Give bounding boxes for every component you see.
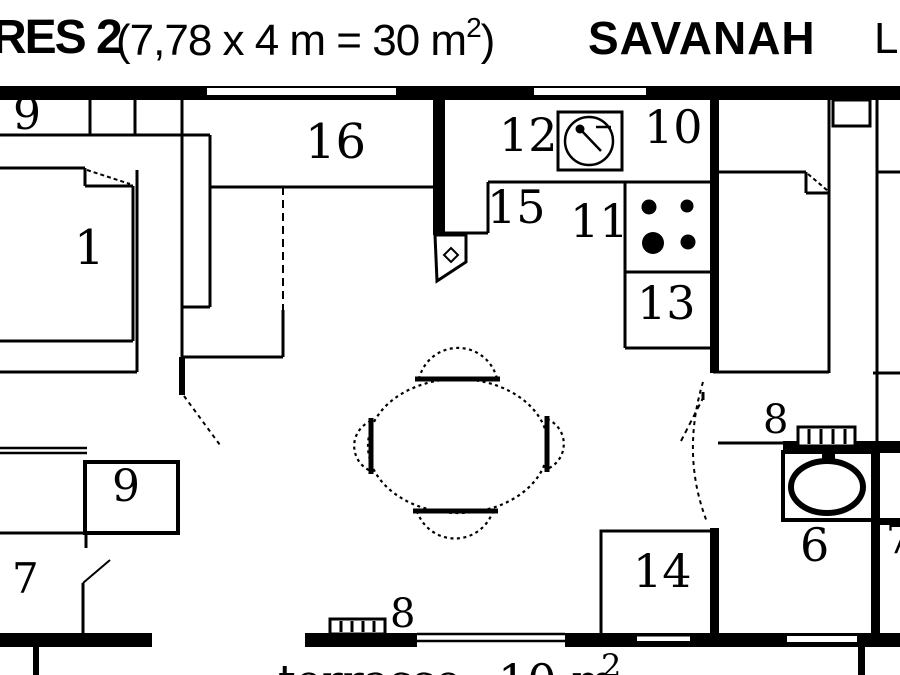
kitchen-sink-icon (565, 117, 613, 165)
room-label-8-bath: 8 (763, 400, 788, 440)
wall-bottom-left (0, 633, 152, 647)
fixture-boxes (85, 100, 875, 635)
terrace-post-right (858, 647, 865, 675)
terrace-area: 10 m (498, 658, 615, 675)
room-label-13: 13 (637, 280, 696, 326)
window-top-left (207, 88, 396, 95)
wall-center-right (710, 100, 719, 373)
terrace-label: terrasse (278, 660, 461, 675)
dining-table-icon (368, 379, 548, 513)
window-top-center (534, 88, 646, 95)
room-label-10: 10 (644, 104, 703, 150)
vent-terrace-icon (330, 619, 385, 634)
chair-right-icon (547, 419, 564, 469)
wall-top (0, 86, 900, 100)
room-label-9-top: 9 (13, 93, 41, 137)
chair-bottom-icon (417, 511, 493, 539)
fridge-box (833, 100, 870, 126)
room-label-7-right-partial: 7 (886, 520, 900, 560)
vent-bath-icon (798, 427, 855, 446)
room-label-6: 6 (800, 522, 829, 568)
room-label-8-terrace: 8 (390, 594, 415, 634)
bedroom2-door-leaf (681, 398, 703, 441)
bed-1 (0, 168, 133, 341)
room-label-12: 12 (499, 112, 558, 158)
door-post-bedroom1 (179, 357, 185, 395)
dining-set (354, 348, 564, 539)
room-label-1: 1 (74, 224, 105, 272)
room-label-15: 15 (487, 184, 546, 230)
room-label-11: 11 (570, 198, 629, 244)
bedroom1-door-swing (184, 396, 220, 445)
bed-2-fold (808, 174, 828, 191)
hob-burners-icon (642, 200, 696, 255)
wall-entry (433, 100, 445, 235)
bed-1-fold (87, 170, 130, 184)
room-label-14: 14 (633, 548, 692, 594)
plan-linework (0, 0, 900, 675)
entry-door-leaf-icon (435, 235, 466, 281)
room-label-16: 16 (305, 118, 366, 166)
wc-door-leaf (83, 560, 110, 583)
terrace-area-sup: 2 (601, 650, 621, 675)
chair-top-icon (419, 348, 497, 379)
room-label-7: 7 (12, 558, 39, 600)
room-label-9-mid: 9 (112, 465, 140, 509)
thin-walls (0, 100, 900, 641)
terrace-post-left (33, 647, 39, 675)
floor-plan: RES 2 (7,78 x 4 m = 30 m2) SAVANAH L (0, 0, 900, 675)
bathroom-door-arc (693, 382, 707, 522)
window-bottom-2 (787, 636, 857, 642)
washbasin-bowl-icon (791, 461, 863, 513)
